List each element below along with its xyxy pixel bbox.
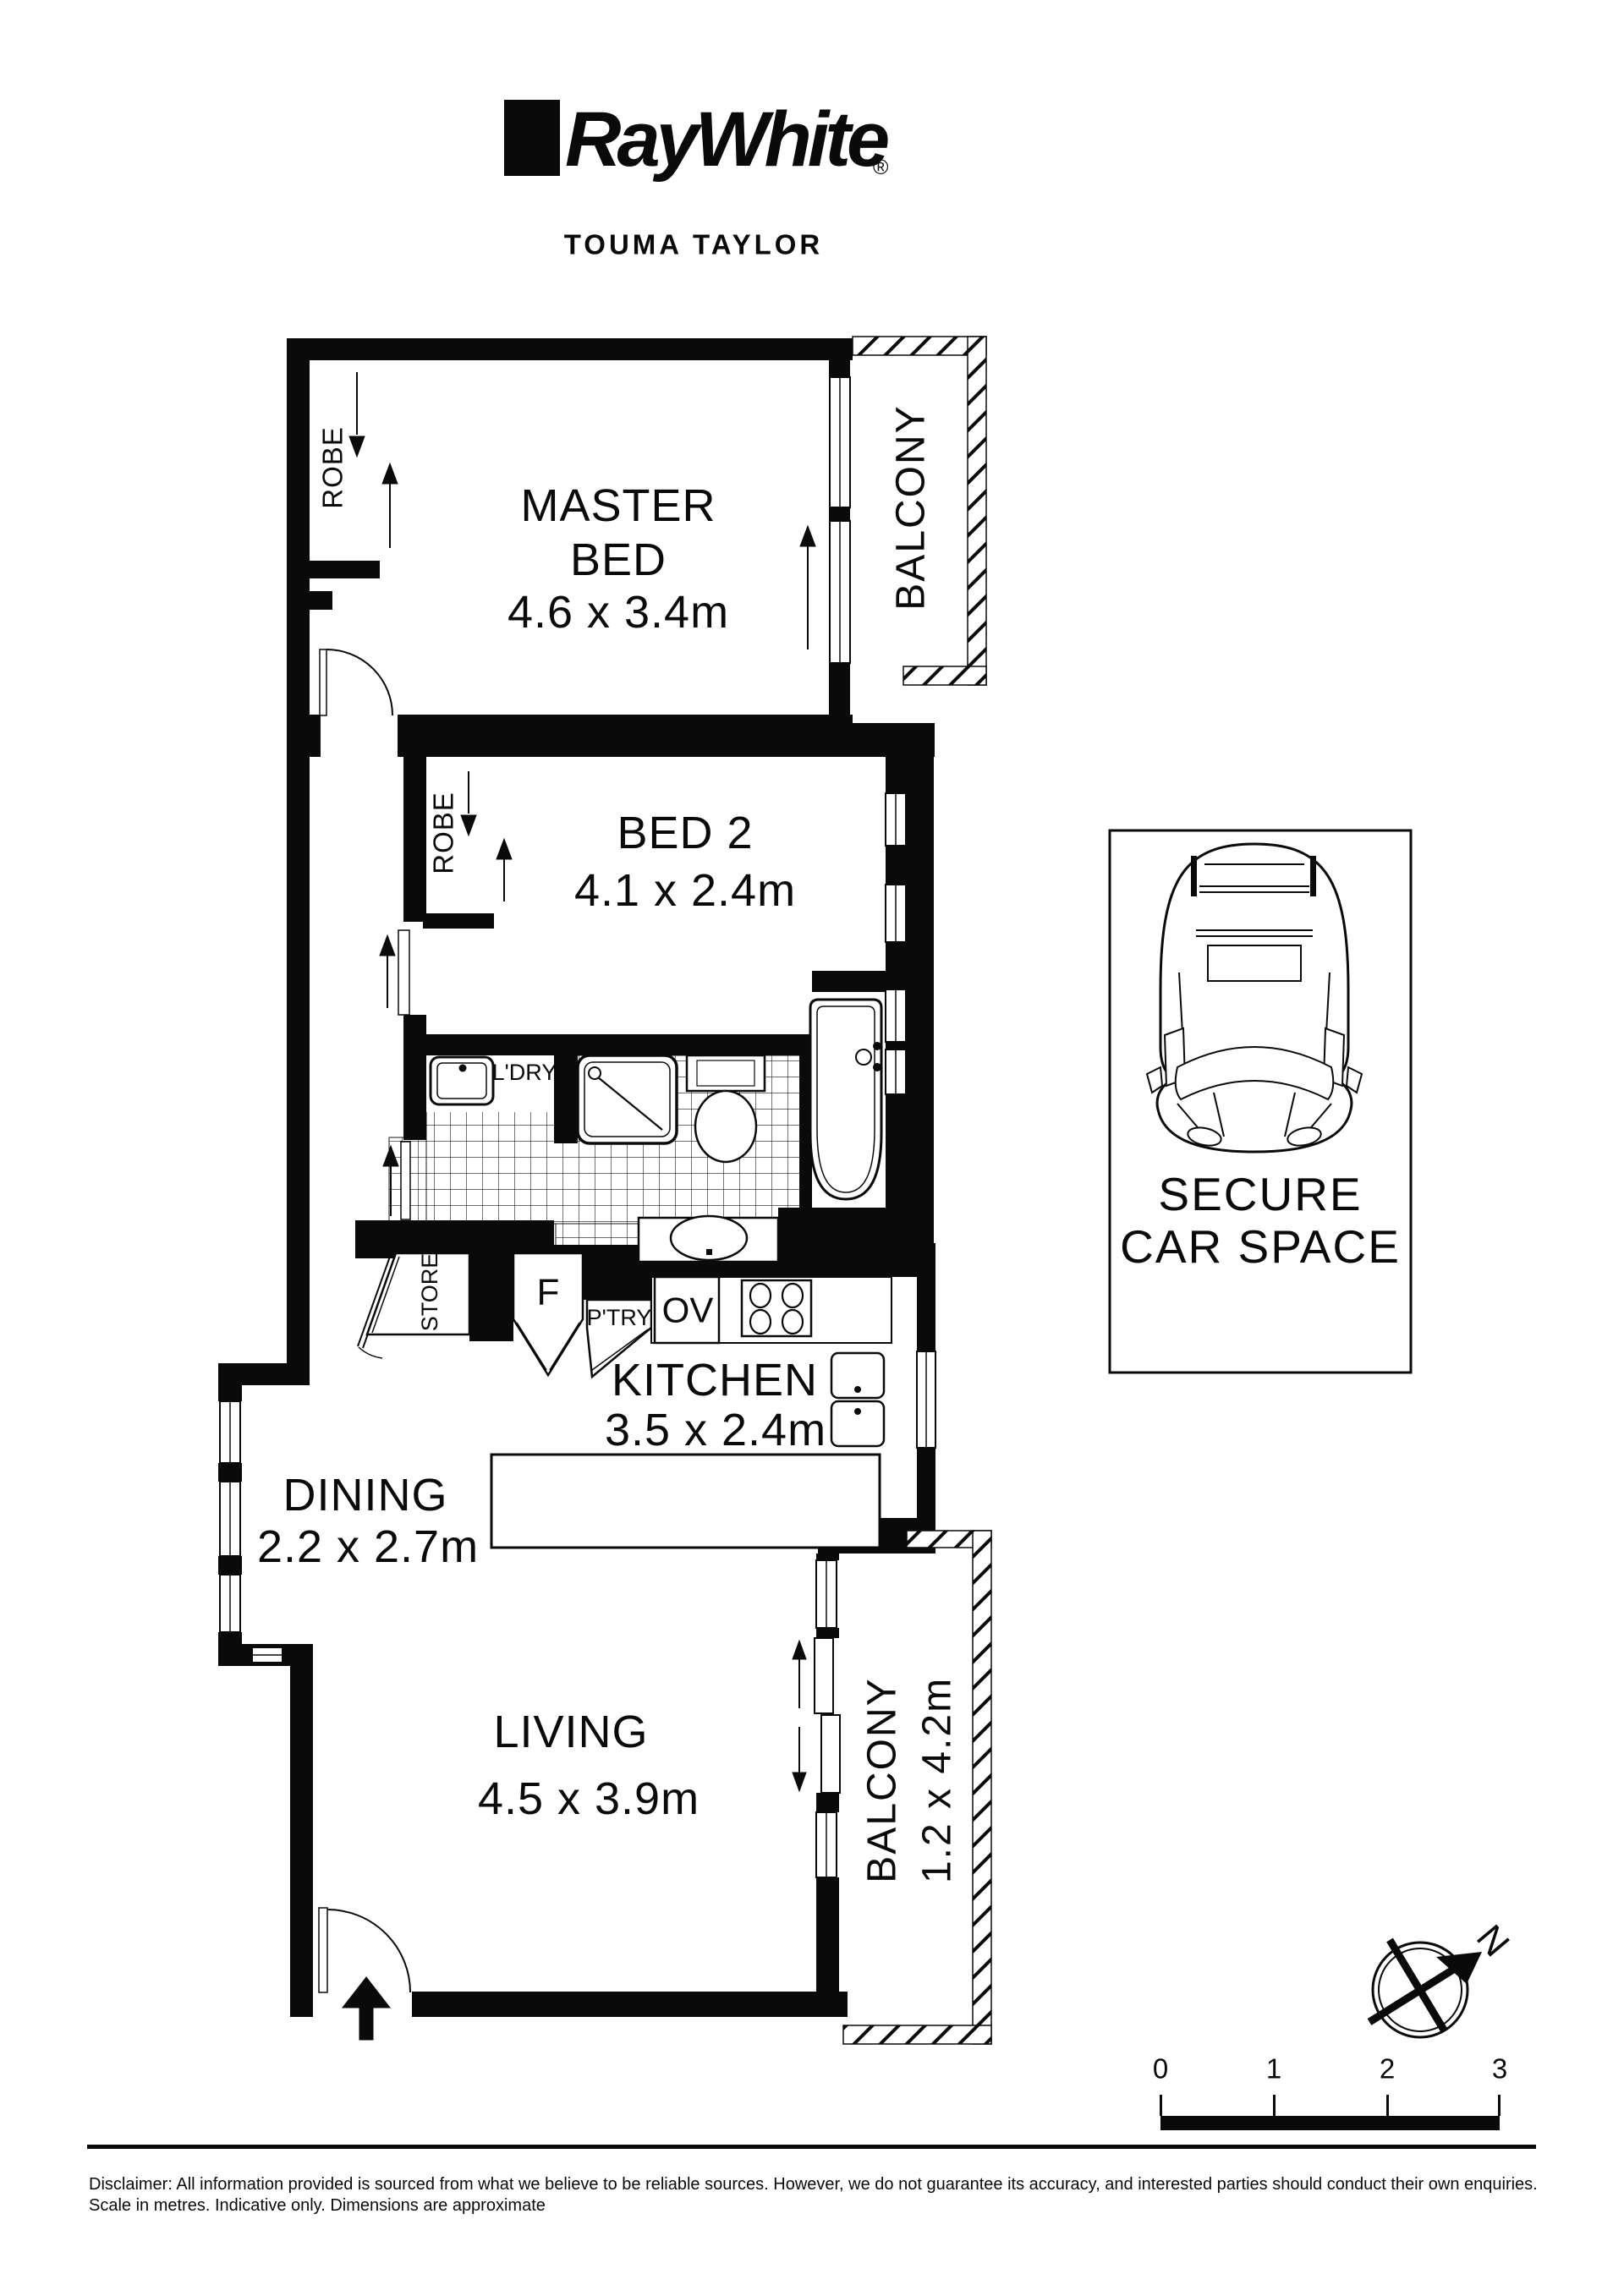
header: RayWhite ® TOUMA TAYLOR	[504, 96, 889, 260]
footer-divider	[87, 2145, 1536, 2149]
kitchen-dims: 3.5 x 2.4m	[605, 1405, 826, 1455]
vanity	[639, 1216, 778, 1262]
scale-bar-rule	[1160, 2116, 1500, 2130]
dining-label: DINING	[283, 1470, 448, 1521]
balcony-top: BALCONY	[853, 337, 986, 685]
scale-label-2: 2	[1380, 2053, 1395, 2085]
door-master	[320, 649, 392, 715]
window-master-balcony	[830, 377, 850, 663]
kitchen-island	[491, 1455, 880, 1548]
kitchen-sink	[831, 1353, 884, 1446]
scale-label-3: 3	[1492, 2053, 1507, 2085]
scale-bar: 0 1 2 3	[1153, 2053, 1507, 2131]
car-space-label-2: CAR SPACE	[1120, 1220, 1401, 1273]
disclaimer-line-2: Scale in metres. Indicative only. Dimens…	[89, 2196, 546, 2215]
balcony-bottom-dims: 1.2 x 4.2m	[915, 1677, 960, 1883]
agency-name: TOUMA TAYLOR	[564, 229, 824, 260]
window-bathroom	[886, 989, 906, 1094]
balcony-bottom: BALCONY 1.2 x 4.2m	[843, 1531, 991, 2044]
cooktop	[742, 1280, 811, 1336]
brand-name: RayWhite	[565, 96, 888, 183]
bed2-dims: 4.1 x 2.4m	[574, 865, 796, 916]
window-living-balcony	[815, 1560, 840, 1877]
robe-master-arrow-down	[349, 436, 365, 457]
laundry-sink	[431, 1057, 493, 1104]
pantry-label: P'TRY	[587, 1305, 652, 1330]
robe-bed2-label: ROBE	[428, 792, 459, 874]
door-bed2	[398, 930, 409, 1015]
car-space-label-1: SECURE	[1158, 1168, 1362, 1220]
entry-arrow	[343, 1977, 390, 2040]
shower	[578, 1055, 677, 1143]
master-label-2: BED	[570, 534, 667, 585]
car-space: SECURE CAR SPACE	[1110, 830, 1411, 1373]
balcony-bottom-label: BALCONY	[860, 1677, 905, 1882]
store-cupboard: STORE	[367, 1253, 469, 1334]
dining-dims: 2.2 x 2.7m	[257, 1521, 479, 1572]
disclaimer-line-1: Disclaimer: All information provided is …	[89, 2175, 1538, 2194]
bathtub	[810, 1000, 881, 1199]
floorplan-page: { "header": { "brand": "RayWhite", "regi…	[0, 0, 1624, 2296]
door-bathroom	[401, 1142, 410, 1219]
compass: N	[1369, 1917, 1517, 2037]
car-illustration	[1147, 844, 1362, 1152]
store-label: STORE	[417, 1253, 442, 1332]
window-kitchen	[917, 1351, 935, 1448]
living-dims: 4.5 x 3.9m	[478, 1773, 700, 1824]
fridge: F	[513, 1253, 583, 1375]
living-label: LIVING	[493, 1707, 648, 1757]
robe-master-arrow-up	[382, 463, 398, 484]
robe-master-label: ROBE	[317, 426, 348, 509]
floorplan-canvas: RayWhite ® TOUMA TAYLOR	[0, 0, 1624, 2296]
master-dims: 4.6 x 3.4m	[507, 587, 729, 638]
oven: OV	[655, 1277, 719, 1343]
laundry-label: L'DRY	[492, 1060, 557, 1085]
floor-plan: BALCONY BALCONY 1.2 x 4.2m L'DRY	[218, 337, 991, 2044]
kitchen-label: KITCHEN	[612, 1355, 818, 1406]
bed2-door-arrow	[380, 935, 395, 956]
scale-label-1: 1	[1266, 2053, 1281, 2085]
balcony-slide-arrow-down	[793, 1773, 806, 1791]
balcony-top-label: BALCONY	[889, 404, 934, 610]
scale-label-0: 0	[1153, 2053, 1168, 2085]
registered-mark: ®	[873, 156, 889, 179]
robe-bed2-arrow-down	[461, 815, 476, 836]
bed2-label: BED 2	[617, 808, 753, 858]
master-label-1: MASTER	[520, 480, 716, 531]
master-balcony-arrow	[800, 526, 815, 546]
robe-bed2-arrow-up	[497, 839, 512, 859]
brand-logo-square	[504, 100, 560, 176]
footer: Disclaimer: All information provided is …	[87, 2145, 1538, 2215]
fridge-label: F	[537, 1272, 560, 1313]
balcony-slide-arrow-up	[793, 1641, 806, 1659]
oven-label: OV	[662, 1290, 714, 1330]
